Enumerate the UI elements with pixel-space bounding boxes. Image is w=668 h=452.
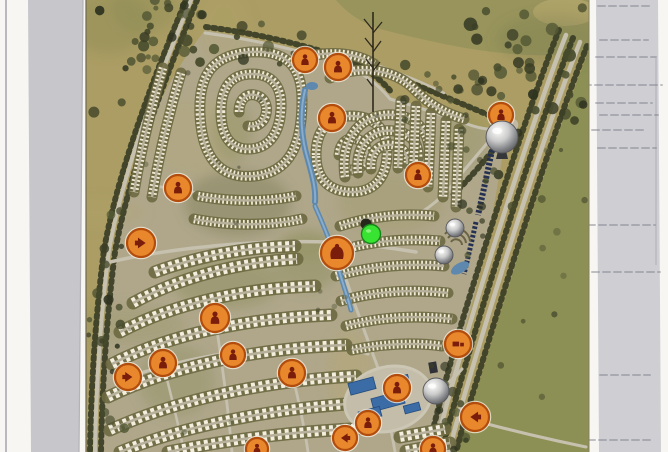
tree-dot [119, 423, 129, 433]
poi-marker [125, 227, 156, 258]
person-icon [330, 112, 335, 117]
tree-dot [447, 142, 455, 150]
tree-dot [148, 36, 158, 46]
pond [306, 82, 318, 90]
poi-marker [319, 235, 354, 270]
person-icon [212, 311, 217, 316]
tree-dot [486, 86, 496, 96]
person-icon [161, 357, 166, 362]
tree-dot [472, 23, 479, 30]
tree-dot [143, 161, 149, 167]
tree-dot [185, 70, 190, 75]
tree-dot [493, 63, 501, 71]
tree-dot [490, 167, 498, 175]
tree-dot [477, 157, 483, 163]
poi-marker [459, 401, 490, 432]
tree-dot [531, 106, 539, 114]
tree-dot [257, 96, 263, 102]
tree-dot [234, 34, 240, 40]
tree-dot [100, 244, 110, 254]
tree-dot [463, 437, 468, 442]
left-scan-band [28, 0, 83, 452]
tree-dot [579, 100, 587, 108]
tree-dot [152, 54, 160, 62]
tree-dot [578, 3, 587, 12]
poi-marker [277, 358, 306, 387]
sphere-ball [423, 378, 449, 404]
tree-dot [86, 332, 91, 337]
tree-dot [181, 35, 193, 47]
tree-dot [118, 98, 126, 106]
tree-dot [519, 9, 529, 19]
tree-dot [516, 67, 523, 74]
tree-dot [258, 20, 265, 27]
tree-dot [132, 38, 139, 45]
tree-dot [102, 261, 110, 269]
scanned-page [0, 0, 668, 452]
person-icon [366, 417, 370, 421]
tree-dot [197, 10, 206, 19]
tree-dot [440, 362, 450, 372]
tree-dot [116, 304, 123, 311]
person-icon [416, 169, 420, 173]
tree-dot [546, 102, 558, 114]
poi-marker [382, 373, 411, 402]
person-icon [499, 109, 503, 113]
tree-dot [142, 11, 152, 21]
sphere-marker [435, 246, 453, 264]
sphere-highlight [428, 383, 436, 388]
person-icon [303, 54, 307, 58]
tree-dot [563, 49, 576, 62]
tree-dot [263, 41, 274, 52]
tree-dot [153, 6, 158, 11]
poi-marker [163, 173, 192, 202]
tree-dot [146, 54, 151, 59]
tree-dot [400, 60, 410, 70]
tree-dot [115, 344, 120, 349]
tree-dot [468, 70, 479, 81]
person-icon [290, 367, 295, 372]
tree-dot [551, 311, 557, 317]
person-icon [255, 444, 259, 448]
tree-dot [87, 317, 92, 322]
poi-marker [317, 103, 346, 132]
sphere-ball [486, 121, 518, 153]
tree-dot [237, 166, 240, 169]
person-icon [395, 382, 400, 387]
left-page-edge-line [5, 0, 7, 452]
poi-marker [219, 341, 246, 368]
tree-dot [180, 1, 189, 10]
tree-dot [448, 97, 454, 103]
tree-dot [136, 53, 146, 63]
tree-dot [566, 91, 573, 98]
tree-dot [507, 29, 519, 41]
tree-dot [528, 89, 538, 99]
tree-dot [538, 195, 546, 203]
hand-icon [335, 244, 339, 248]
tree-dot [513, 57, 524, 68]
tree-dot [498, 362, 505, 369]
tree-dot [344, 295, 348, 299]
master-plan-photo [39, 0, 612, 452]
tree-dot [195, 57, 205, 67]
tree-dot [400, 95, 409, 104]
tree-dot [581, 197, 587, 203]
tree-dot [179, 46, 190, 57]
tree-dot [127, 57, 136, 66]
tree-dot [559, 148, 563, 152]
tree-dot [497, 92, 505, 100]
sphere-ball [446, 219, 464, 237]
tree-dot [297, 30, 307, 40]
tree-dot [99, 338, 104, 343]
tree-dot [187, 23, 194, 30]
tree-dot [128, 328, 131, 331]
poi-marker [148, 348, 177, 377]
tree-dot [562, 71, 570, 79]
tree-dot [189, 46, 197, 54]
tree-dot [478, 202, 486, 210]
person-icon [176, 182, 181, 187]
tree-dot [228, 419, 234, 425]
tree-dot [512, 44, 522, 54]
site-plan-scan [0, 0, 668, 452]
tree-dot [122, 65, 128, 71]
tree-dot [521, 319, 526, 324]
green-dot-highlight [366, 229, 371, 232]
tree-dot [553, 228, 561, 236]
tree-dot [142, 65, 151, 74]
tree-dot [147, 23, 154, 30]
tree-dot [539, 245, 546, 252]
tree-dot [107, 210, 116, 219]
tree-dot [508, 202, 517, 211]
tree-dot [458, 126, 467, 135]
poi-marker [354, 409, 381, 436]
tree-dot [453, 84, 463, 94]
poi-marker [199, 302, 230, 333]
tree-dot [436, 406, 443, 413]
sphere-highlight [492, 128, 502, 134]
tree-dot [95, 6, 105, 16]
sphere-marker [446, 219, 464, 237]
person-icon [431, 443, 435, 447]
sphere-marker [423, 378, 449, 404]
tree-dot [524, 63, 535, 74]
tree-dot [482, 7, 490, 15]
tree-dot [238, 54, 249, 65]
tree-dot [570, 116, 579, 125]
tree-dot [436, 86, 443, 93]
tree-dot [332, 304, 338, 310]
tree-dot [105, 415, 115, 425]
tree-dot [167, 33, 176, 42]
person-icon [336, 61, 341, 66]
tree-dot [88, 107, 99, 118]
tree-dot [116, 207, 124, 215]
tree-dot [471, 33, 482, 44]
poi-marker [323, 52, 352, 81]
tree-dot [139, 32, 149, 42]
tree-dot [216, 160, 220, 164]
tree-dot [520, 35, 531, 46]
tree-dot [417, 95, 421, 99]
tree-dot [546, 23, 559, 36]
tree-dot [318, 289, 323, 294]
tree-dot [466, 207, 473, 214]
poi-marker [331, 424, 358, 451]
tree-dot [424, 71, 431, 78]
tree-dot [442, 418, 450, 426]
tree-dot [471, 84, 483, 96]
tree-dot [544, 148, 550, 154]
poi-marker [443, 329, 472, 358]
tree-dot [116, 320, 126, 330]
tree-dot [100, 408, 109, 417]
tree-dot [483, 178, 489, 184]
tree-dot [277, 61, 283, 67]
tree-dot [119, 244, 124, 249]
tree-dot [429, 363, 434, 368]
tree-dot [458, 199, 467, 208]
tree-dot [92, 288, 102, 298]
tree-dot [560, 108, 571, 119]
person-icon [231, 349, 235, 353]
tree-dot [479, 218, 485, 224]
tree-dot [480, 233, 485, 238]
tree-dot [539, 394, 545, 400]
tree-dot [209, 44, 219, 54]
tree-dot [463, 146, 470, 153]
tree-dot [103, 295, 113, 305]
green-dot-disc [362, 225, 381, 244]
poi-marker [113, 362, 142, 391]
tree-dot [433, 81, 439, 87]
tree-dot [181, 429, 187, 435]
tree-dot [402, 116, 408, 122]
tree-dot [464, 252, 470, 258]
tree-dot [316, 308, 321, 313]
tree-dot [234, 220, 239, 225]
sphere-ball [435, 246, 453, 264]
tree-dot [237, 21, 248, 32]
sphere-highlight [438, 250, 444, 254]
tree-dot [451, 74, 456, 79]
tree-dot [560, 273, 566, 279]
tree-dot [478, 78, 484, 84]
sphere-highlight [449, 223, 455, 227]
green-location-dot [362, 225, 381, 244]
tree-dot [463, 112, 469, 118]
tree-dot [375, 114, 379, 118]
tree-dot [178, 13, 184, 19]
poi-marker [404, 161, 431, 188]
poi-marker [291, 46, 318, 73]
tree-dot [505, 41, 512, 48]
